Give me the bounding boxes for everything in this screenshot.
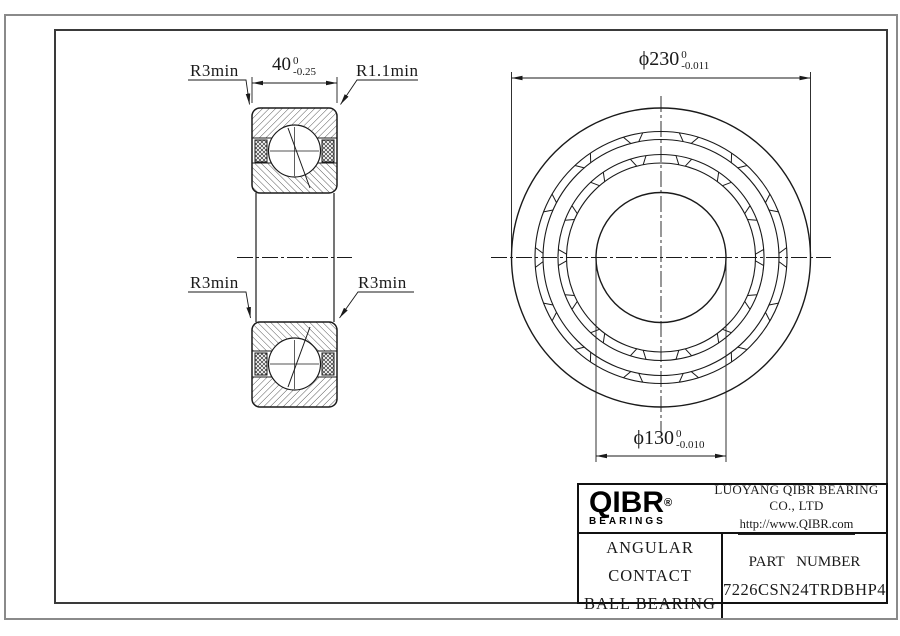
part-number-cell: PART NUMBER 7226CSN24TRDBHP4 [723, 534, 886, 618]
cage-section [255, 353, 267, 375]
product-line1: ANGULAR CONTACT [579, 534, 721, 590]
product-description: ANGULAR CONTACT BALL BEARING [579, 534, 723, 618]
front-view [491, 72, 831, 462]
product-line2: BALL BEARING [584, 590, 716, 618]
part-number-label: PART NUMBER [749, 548, 861, 576]
section-top-half [252, 108, 337, 193]
company-website: http://www.QIBR.com [738, 517, 856, 535]
company-info: LUOYANG QIBR BEARING CO., LTD http://www… [707, 482, 886, 535]
note-r1-top-right: R1.1min [356, 61, 419, 81]
note-r3-bottom-left: R3min [190, 273, 239, 293]
dimension-width [252, 77, 337, 103]
logo-subtext: BEARINGS [589, 516, 707, 527]
section-bottom-half [252, 322, 337, 407]
leader-r3-bottom-right [340, 292, 415, 318]
cage-section [322, 140, 334, 162]
leader-r3-bottom-left [188, 292, 251, 318]
bearing-drawing-sheet: R3min R1.1min R3min R3min 40 0 -0.25 ϕ23… [0, 0, 900, 636]
title-block-header-row: QIBR® BEARINGS LUOYANG QIBR BEARING CO.,… [579, 485, 886, 534]
title-block-detail-row: ANGULAR CONTACT BALL BEARING PART NUMBER… [579, 534, 886, 618]
note-r3-top-left: R3min [190, 61, 239, 81]
dim-text-bore: ϕ130 0 -0.010 [634, 427, 705, 451]
leader-r1-top-right [341, 80, 419, 105]
dim-text-width: 40 0 -0.25 [272, 54, 316, 78]
cage-section [322, 353, 334, 375]
registered-mark-icon: ® [664, 497, 672, 509]
note-r3-bottom-right: R3min [358, 273, 407, 293]
company-name: LUOYANG QIBR BEARING CO., LTD [707, 482, 886, 515]
cage-section [255, 140, 267, 162]
logo-text: QIBR [589, 486, 664, 519]
leader-r3-top-left [188, 80, 250, 105]
part-number-value: 7226CSN24TRDBHP4 [723, 576, 886, 604]
title-block: QIBR® BEARINGS LUOYANG QIBR BEARING CO.,… [577, 483, 888, 604]
logo: QIBR® BEARINGS [579, 490, 707, 527]
section-view [188, 77, 418, 407]
dim-text-od: ϕ230 0 -0.011 [639, 48, 710, 72]
